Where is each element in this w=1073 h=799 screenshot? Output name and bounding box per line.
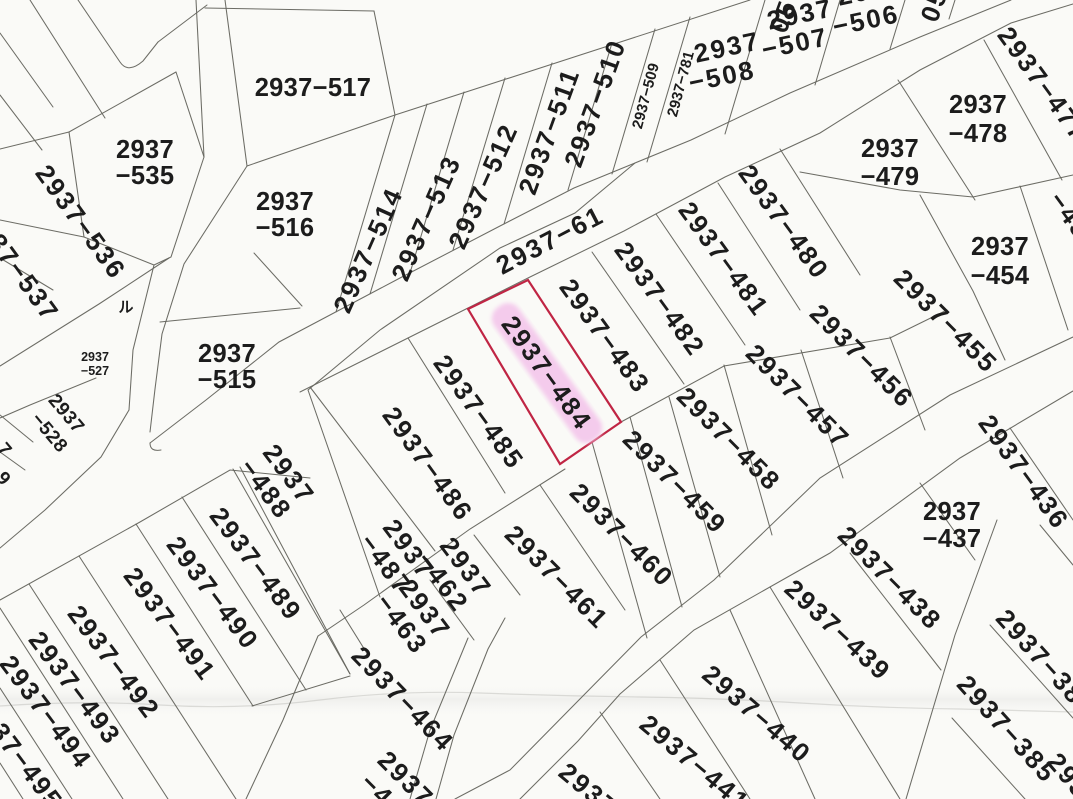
svg-text:2937: 2937	[949, 91, 1007, 119]
svg-text:2937: 2937	[198, 340, 256, 368]
svg-text:2937: 2937	[923, 498, 981, 526]
svg-text:−479: −479	[861, 163, 920, 191]
svg-text:−535: −535	[116, 162, 175, 190]
svg-text:−515: −515	[198, 366, 257, 394]
svg-text:2937: 2937	[256, 188, 314, 216]
svg-text:ル: ル	[118, 299, 133, 316]
svg-text:2937: 2937	[861, 135, 919, 163]
svg-text:2937: 2937	[116, 136, 174, 164]
svg-text:2937−517: 2937−517	[255, 74, 372, 102]
svg-text:−478: −478	[949, 120, 1008, 148]
svg-text:−527: −527	[81, 364, 109, 378]
svg-text:−454: −454	[971, 262, 1030, 290]
svg-text:−516: −516	[256, 214, 315, 242]
svg-text:2937: 2937	[81, 350, 109, 364]
svg-text:−437: −437	[923, 525, 982, 553]
svg-text:2937: 2937	[971, 233, 1029, 261]
